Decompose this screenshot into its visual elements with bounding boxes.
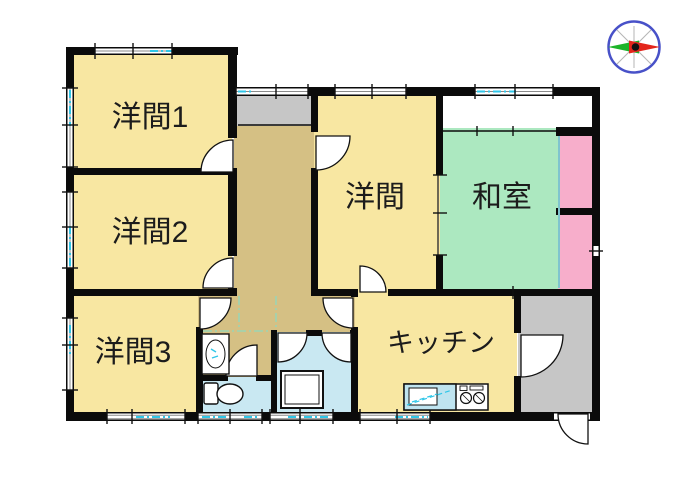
label-kitchen: キッチン: [387, 328, 495, 358]
compass: [608, 22, 660, 73]
compass-pivot: [632, 43, 640, 51]
label-yoma1: 洋間1: [112, 101, 189, 134]
label-yoma2: 洋間2: [112, 216, 189, 249]
door-entry-front: [558, 414, 588, 444]
closet-lower-floor: [558, 212, 594, 292]
floor-plan: 洋間1 洋間2 洋間3 洋間 和室 キッチン: [0, 0, 681, 480]
storage-top-floor: [235, 93, 314, 126]
floor-plan-page: 洋間1 洋間2 洋間3 洋間 和室 キッチン: [0, 0, 681, 480]
washstand: [202, 334, 229, 374]
toilet-fixture: [204, 383, 243, 404]
label-yoma3: 洋間3: [95, 336, 172, 369]
label-yoma: 洋間: [345, 181, 405, 214]
closet-upper-floor: [558, 133, 594, 211]
label-washitsu: 和室: [472, 181, 532, 214]
kitchen-counter: [404, 384, 488, 410]
hallway-floor-vertical: [234, 122, 314, 294]
bathtub: [281, 371, 323, 408]
